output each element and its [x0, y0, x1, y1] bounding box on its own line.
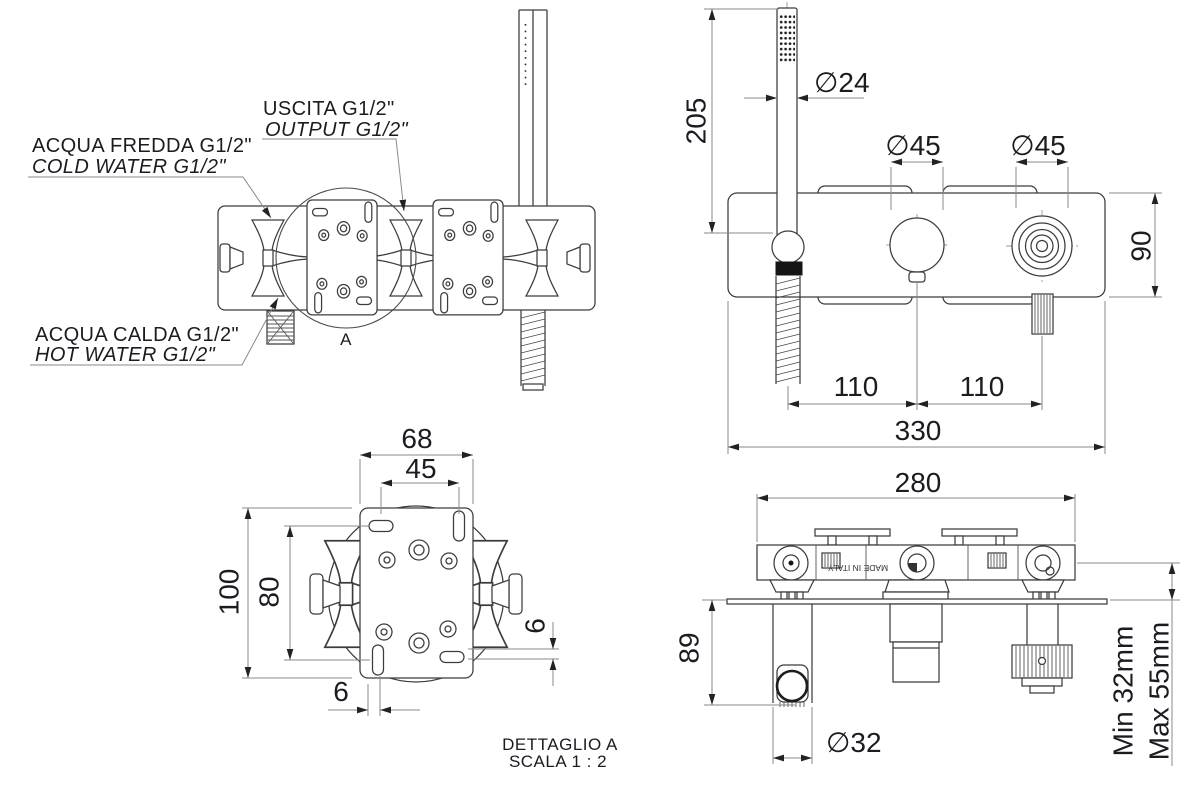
shower-holder-side	[773, 604, 812, 707]
wall-plate	[727, 599, 1107, 604]
svg-text:∅45: ∅45	[885, 130, 941, 161]
svg-text:110: 110	[960, 371, 1005, 402]
svg-text:Min 32mm: Min 32mm	[1107, 626, 1138, 757]
detail-view-a: 68 45 100 80 6	[213, 423, 618, 771]
svg-text:6: 6	[519, 618, 550, 634]
svg-text:∅24: ∅24	[814, 67, 870, 98]
svg-text:45: 45	[405, 453, 436, 484]
dim-45-slots: 45	[381, 453, 459, 514]
callout-hot-line2: HOT WATER G1/2"	[35, 344, 216, 366]
dim-24: ∅24	[744, 67, 870, 98]
callout-output-line2: OUTPUT G1/2"	[265, 119, 409, 141]
handle-side	[1012, 604, 1072, 693]
detail-circle-label: A	[340, 330, 352, 349]
mounting-plate-left-plan	[307, 200, 377, 315]
dim-280: 280	[757, 467, 1075, 542]
connector-knurl-right	[988, 553, 1006, 568]
svg-text:68: 68	[401, 423, 432, 454]
svg-text:280: 280	[895, 467, 942, 498]
dim-plaster-depth: Min 32mm Max 55mm	[1077, 563, 1180, 766]
spray-face-dots	[779, 14, 795, 64]
dim-110-right: 110	[917, 371, 1042, 404]
hot-inlet-nipple	[267, 311, 294, 344]
svg-text:6: 6	[333, 676, 349, 707]
diverter-knob	[886, 214, 948, 410]
svg-text:∅45: ∅45	[1010, 130, 1066, 161]
callout-output: USCITA G1/2" OUTPUT G1/2"	[262, 98, 409, 211]
mounting-plate-right-plan	[433, 200, 503, 315]
callout-hot-line1: ACQUA CALDA G1/2"	[35, 324, 239, 346]
svg-text:89: 89	[673, 632, 704, 663]
dim-90: 90	[1109, 193, 1162, 297]
mounting-plate-detail	[360, 508, 473, 678]
callout-output-line1: USCITA G1/2"	[263, 98, 395, 120]
dim-32: ∅32	[773, 707, 882, 764]
front-view: 205 ∅24 ∅45 ∅45 90 110	[680, 2, 1162, 454]
dim-110-left: 110	[788, 371, 917, 410]
escutcheons-edge	[815, 529, 1017, 545]
callout-cold-line1: ACQUA FREDDA G1/2"	[32, 135, 252, 157]
shower-rail-plan	[519, 10, 547, 206]
svg-text:∅32: ∅32	[826, 727, 882, 758]
svg-text:Max 55mm: Max 55mm	[1143, 622, 1174, 760]
technical-drawing-canvas: A USCITA G1/2" OUTPUT G1/2" ACQUA FREDDA…	[0, 0, 1200, 812]
rough-in-body: MADE IN ITALY	[757, 545, 1075, 600]
drawing-svg: A USCITA G1/2" OUTPUT G1/2" ACQUA FREDDA…	[0, 0, 1200, 812]
svg-text:80: 80	[253, 576, 284, 607]
callout-cold-line2: COLD WATER G1/2"	[32, 156, 226, 178]
made-in-italy-marking: MADE IN ITALY	[828, 563, 888, 573]
detail-scale: SCALA 1 : 2	[509, 752, 607, 771]
svg-text:90: 90	[1125, 230, 1156, 261]
diverter-side	[890, 604, 942, 682]
svg-text:100: 100	[213, 569, 244, 616]
shower-hose-plan	[521, 310, 545, 390]
svg-text:110: 110	[834, 371, 879, 402]
plan-view: A USCITA G1/2" OUTPUT G1/2" ACQUA FREDDA…	[28, 10, 595, 390]
side-view: MADE IN ITALY 280	[673, 467, 1180, 766]
control-handle-front	[1006, 210, 1078, 410]
svg-text:205: 205	[680, 98, 711, 145]
svg-text:330: 330	[895, 415, 942, 446]
